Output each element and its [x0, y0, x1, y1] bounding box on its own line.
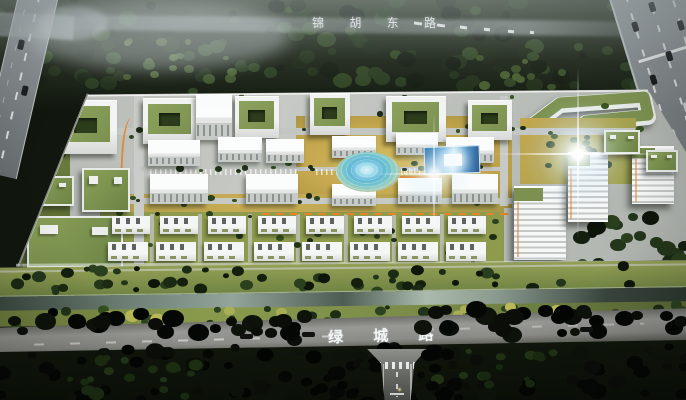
tree-canopy [248, 63, 260, 73]
tree-canopy-lit [169, 54, 178, 61]
tree-canopy [363, 40, 381, 54]
tree-canopy [266, 386, 286, 400]
riverside-tree [148, 279, 160, 288]
tree-canopy [527, 52, 539, 61]
tree-canopy-lit [187, 370, 196, 377]
tree-canopy [101, 40, 116, 52]
car-silhouette [302, 332, 315, 337]
riverside-tree [11, 279, 24, 290]
riverside-tree [223, 274, 229, 279]
tree-canopy [406, 73, 425, 88]
bank-tree [60, 307, 71, 316]
tree-silhouette [210, 324, 221, 333]
campus-tree [582, 140, 590, 146]
campus-path [198, 214, 202, 262]
inner-courtyard [159, 113, 180, 126]
riverside-tree [318, 274, 330, 284]
riverside-tree [52, 289, 59, 295]
riverside-tree [133, 287, 140, 292]
residential-block [160, 216, 198, 234]
tree-canopy [0, 365, 11, 380]
tree-canopy [508, 0, 528, 9]
riverside-tree [491, 273, 499, 280]
green-roof-midrise [646, 150, 678, 172]
tree-canopy [352, 368, 367, 380]
residential-block [354, 216, 392, 234]
tree-canopy [447, 378, 463, 391]
tree-canopy [623, 367, 634, 376]
tree-silhouette [265, 328, 277, 337]
campus-tree [38, 143, 47, 150]
tree-canopy [397, 52, 416, 67]
car-silhouette [580, 327, 593, 332]
tree-canopy [634, 365, 650, 378]
tree-canopy [202, 349, 213, 358]
reflecting-pool [424, 145, 481, 175]
residential-block [446, 242, 486, 261]
residential-block [254, 242, 294, 261]
bank-tree [214, 307, 221, 313]
tree-canopy [85, 78, 99, 89]
tree-canopy-lit [124, 373, 135, 382]
tree-canopy-lit [145, 58, 154, 65]
riverside-tree [232, 266, 244, 276]
courtyard-building [468, 100, 512, 140]
office-block [196, 94, 232, 140]
inner-courtyard [404, 111, 427, 124]
tree-canopy [477, 387, 497, 400]
tree-canopy-lit [496, 365, 503, 371]
tree-canopy [582, 381, 599, 394]
tree-canopy [360, 396, 377, 400]
campus-tree [24, 181, 32, 187]
tree-silhouette [495, 323, 512, 337]
tree-silhouette [674, 316, 686, 327]
office-tower [514, 186, 566, 260]
riverside-tree [402, 281, 413, 290]
tree-canopy [574, 43, 583, 50]
riverside-tree [202, 267, 209, 273]
tree-canopy [27, 351, 37, 359]
tree-canopy [192, 387, 202, 395]
campus-tree [545, 163, 552, 168]
campus-tree [642, 211, 660, 225]
residential-block [156, 242, 196, 261]
office-tower [568, 152, 608, 222]
tree-canopy-lit [123, 74, 131, 80]
tree-canopy [295, 348, 304, 356]
tree-canopy-lit [500, 71, 510, 79]
courtyard-building [310, 93, 350, 135]
campus-path [344, 214, 348, 262]
tree-canopy-lit [548, 349, 557, 356]
inner-courtyard [248, 110, 265, 122]
tree-canopy-lit [189, 360, 202, 371]
tree-canopy [209, 40, 225, 53]
tree-canopy-lit [203, 74, 216, 84]
campus-tree [456, 129, 460, 133]
car [631, 21, 640, 32]
inner-courtyard [322, 107, 337, 119]
tree-canopy [224, 362, 233, 370]
tree-canopy [470, 355, 484, 367]
tree-canopy-lit [81, 385, 95, 396]
riverside-tree [618, 261, 630, 270]
campus-tree [199, 169, 203, 172]
tree-silhouette [428, 306, 444, 319]
tree-canopy [276, 65, 284, 72]
riverside-tree [476, 271, 483, 277]
campus-tree [492, 219, 499, 225]
riverside-tree [113, 268, 121, 274]
car [21, 85, 29, 96]
riverside-tree [240, 280, 253, 290]
tree-silhouette [75, 319, 86, 328]
tree-canopy [231, 344, 240, 351]
tree-silhouette [576, 305, 591, 317]
riverside-tree [389, 277, 396, 283]
tree-canopy [69, 0, 78, 4]
tree-canopy-lit [522, 59, 528, 64]
tree-canopy-lit [103, 355, 111, 361]
campus-tree [628, 213, 638, 221]
residential-block [258, 216, 296, 234]
tree-silhouette [226, 317, 237, 326]
lab-building [218, 137, 262, 162]
campus-tree [510, 95, 515, 99]
riverside-tree [411, 265, 424, 276]
residential-block [350, 242, 390, 261]
residential-block [204, 242, 244, 261]
tree-canopy-lit [484, 381, 494, 389]
tree-canopy [268, 0, 285, 13]
tree-silhouette [466, 301, 487, 318]
tree-canopy [77, 357, 87, 365]
tree-canopy [106, 67, 115, 75]
courtyard-building [55, 100, 117, 154]
tree-canopy [665, 343, 674, 350]
campus-path [248, 214, 252, 262]
tree-canopy [305, 351, 321, 364]
residential-block [306, 216, 344, 234]
car [17, 39, 25, 50]
tree-canopy [0, 391, 6, 399]
tree-silhouette [554, 305, 574, 321]
tree-canopy [663, 363, 672, 370]
residential-block [448, 216, 486, 234]
riverside-tree [121, 280, 128, 286]
riverside-tree [32, 271, 46, 282]
tree-canopy [277, 370, 291, 382]
tree-canopy [604, 363, 616, 373]
central-pond [336, 152, 400, 192]
campus-path [296, 214, 300, 262]
tree-canopy [48, 66, 61, 77]
tree-canopy [257, 348, 273, 361]
tree-canopy [679, 362, 686, 371]
riverside-tree [492, 282, 499, 287]
tree-canopy [416, 389, 433, 400]
tree-canopy-lit [160, 377, 167, 382]
tree-canopy [249, 394, 266, 400]
running-track [262, 213, 512, 215]
tree-canopy [36, 373, 50, 385]
tree-canopy [106, 52, 121, 64]
green-roof-midrise [604, 130, 640, 154]
residential-block [108, 242, 148, 261]
campus-tree [573, 231, 590, 245]
tree-canopy [449, 71, 459, 79]
tree-canopy [146, 344, 165, 360]
tree-canopy [608, 375, 626, 389]
riverside-tree [373, 275, 380, 280]
tree-canopy [421, 349, 436, 361]
bank-grass-patch [224, 306, 235, 315]
riverside-tree [257, 274, 267, 282]
campus-tree [377, 111, 384, 117]
tree-canopy-lit [150, 71, 159, 78]
courtyard-building [235, 96, 279, 138]
car [649, 74, 658, 85]
tree-canopy-lit [169, 65, 177, 71]
campus-tree [634, 231, 646, 241]
tree-canopy [146, 2, 156, 10]
riverside-tree [182, 265, 192, 273]
road-marking [390, 393, 404, 395]
residential-block [302, 242, 342, 261]
tree-canopy [675, 389, 686, 400]
tree-canopy [640, 390, 649, 397]
lab-building [150, 174, 208, 204]
residential-block [208, 216, 246, 234]
campus-tree [22, 190, 29, 196]
tree-canopy [328, 48, 336, 55]
tree-canopy-lit [223, 56, 229, 61]
campus-tree [276, 235, 284, 241]
tree-canopy-lit [465, 348, 472, 354]
tree-canopy-lit [479, 371, 491, 381]
tree-canopy [585, 43, 604, 58]
car-headlight [397, 387, 402, 392]
campus-tree [585, 146, 592, 152]
riverside-tree [163, 277, 177, 288]
bank-tree [385, 305, 390, 309]
tree-canopy [65, 393, 77, 400]
riverside-tree [22, 273, 31, 281]
campus-tree [35, 153, 41, 157]
lab-building [246, 174, 298, 204]
tree-canopy-lit [180, 393, 189, 400]
tree-canopy [470, 6, 482, 15]
campus-path [440, 214, 444, 262]
tree-canopy-lit [67, 377, 74, 382]
tree-canopy-lit [184, 65, 194, 73]
riverside-tree [439, 269, 447, 275]
tree-silhouette [275, 314, 292, 328]
tree-canopy [602, 46, 613, 55]
tree-canopy-lit [103, 367, 113, 375]
tree-canopy [448, 361, 458, 369]
campus-tree [310, 168, 315, 172]
tree-silhouette [414, 320, 432, 334]
campus-tree [391, 238, 397, 243]
tree-canopy [307, 67, 318, 76]
tree-canopy-lit [185, 39, 192, 45]
lit-pavilion [444, 154, 462, 167]
campus-tree [42, 130, 48, 135]
tree-canopy-lit [120, 357, 129, 364]
riverside-tree [58, 284, 68, 292]
lab-building [452, 174, 498, 204]
inner-courtyard [481, 113, 498, 124]
campus-tree [411, 161, 417, 166]
campus-tree [678, 241, 686, 251]
stop-line [638, 43, 686, 62]
courtyard-building [143, 98, 197, 144]
tree-canopy [417, 372, 425, 379]
campus-tree [207, 195, 214, 201]
campus-tree [402, 168, 407, 172]
tree-canopy-lit [124, 40, 132, 46]
campus-tree [29, 125, 37, 131]
tree-canopy [136, 395, 147, 400]
tree-canopy-lit [512, 73, 521, 80]
tree-canopy-lit [558, 69, 566, 76]
car-silhouette [240, 334, 253, 339]
campus-tree [37, 168, 45, 174]
lab-building [266, 139, 304, 163]
campus-tree [520, 126, 525, 130]
bank-tree [264, 306, 271, 311]
riverside-tree [556, 279, 566, 287]
residential-block [402, 216, 440, 234]
campus-tree [374, 234, 380, 239]
car [677, 20, 686, 31]
intersection-haze [38, 6, 108, 40]
tree-canopy [121, 344, 134, 355]
tree-canopy-lit [479, 81, 490, 90]
tree-canopy [299, 50, 315, 63]
tree-canopy [166, 44, 174, 50]
lab-building [398, 178, 442, 204]
tree-silhouette [538, 305, 553, 317]
tree-canopy-lit [159, 386, 169, 394]
north-road-label: 锦 胡 东 路 [312, 14, 447, 31]
tree-silhouette [133, 308, 149, 320]
campus-tree [242, 165, 249, 170]
tree-canopy [455, 394, 464, 400]
car [648, 1, 657, 12]
tree-canopy [320, 62, 340, 78]
tree-silhouette [570, 328, 580, 336]
tree-canopy [572, 347, 588, 360]
riverside-tree [177, 278, 188, 287]
riverside-tree [194, 284, 207, 294]
tree-silhouette [35, 313, 56, 330]
campus-tree [546, 141, 555, 148]
campus-tree [130, 196, 136, 201]
residential-block [112, 216, 150, 234]
tree-canopy [183, 51, 195, 61]
tree-canopy [79, 39, 92, 50]
tree-canopy [569, 81, 580, 90]
tree-canopy-lit [147, 365, 158, 374]
campus-tree [306, 193, 313, 198]
residential-block [398, 242, 438, 261]
tree-canopy [501, 11, 511, 19]
campus-path [150, 214, 154, 262]
campus-tree [176, 165, 184, 171]
lab-building [148, 140, 200, 166]
tree-canopy [100, 76, 117, 90]
tree-canopy-lit [156, 38, 166, 46]
campus-tree [39, 144, 48, 151]
tree-canopy-lit [511, 65, 521, 73]
tree-silhouette [17, 327, 27, 335]
tree-canopy [429, 364, 441, 374]
tree-silhouette [93, 315, 111, 329]
riverside-tree [102, 279, 113, 288]
tree-canopy [310, 388, 320, 396]
aerial-rendering-canvas: 锦 胡 东 路 绿 城 路 [0, 0, 686, 400]
campus-tree [621, 233, 634, 243]
tree-canopy-lit [227, 68, 237, 76]
road-arrow-marking [530, 31, 534, 34]
tree-canopy [301, 378, 313, 387]
tree-silhouette [297, 310, 313, 322]
tree-canopy [323, 374, 334, 383]
green-roof-hall [82, 168, 130, 212]
tree-canopy-lit [527, 73, 535, 80]
tree-canopy [290, 0, 306, 12]
tree-canopy [317, 32, 336, 47]
riverside-tree [452, 279, 459, 285]
tree-canopy-lit [496, 353, 506, 361]
tree-canopy [130, 356, 145, 368]
tree-canopy-lit [547, 84, 555, 91]
riverside-tree [61, 268, 74, 278]
tree-canopy [644, 346, 655, 355]
